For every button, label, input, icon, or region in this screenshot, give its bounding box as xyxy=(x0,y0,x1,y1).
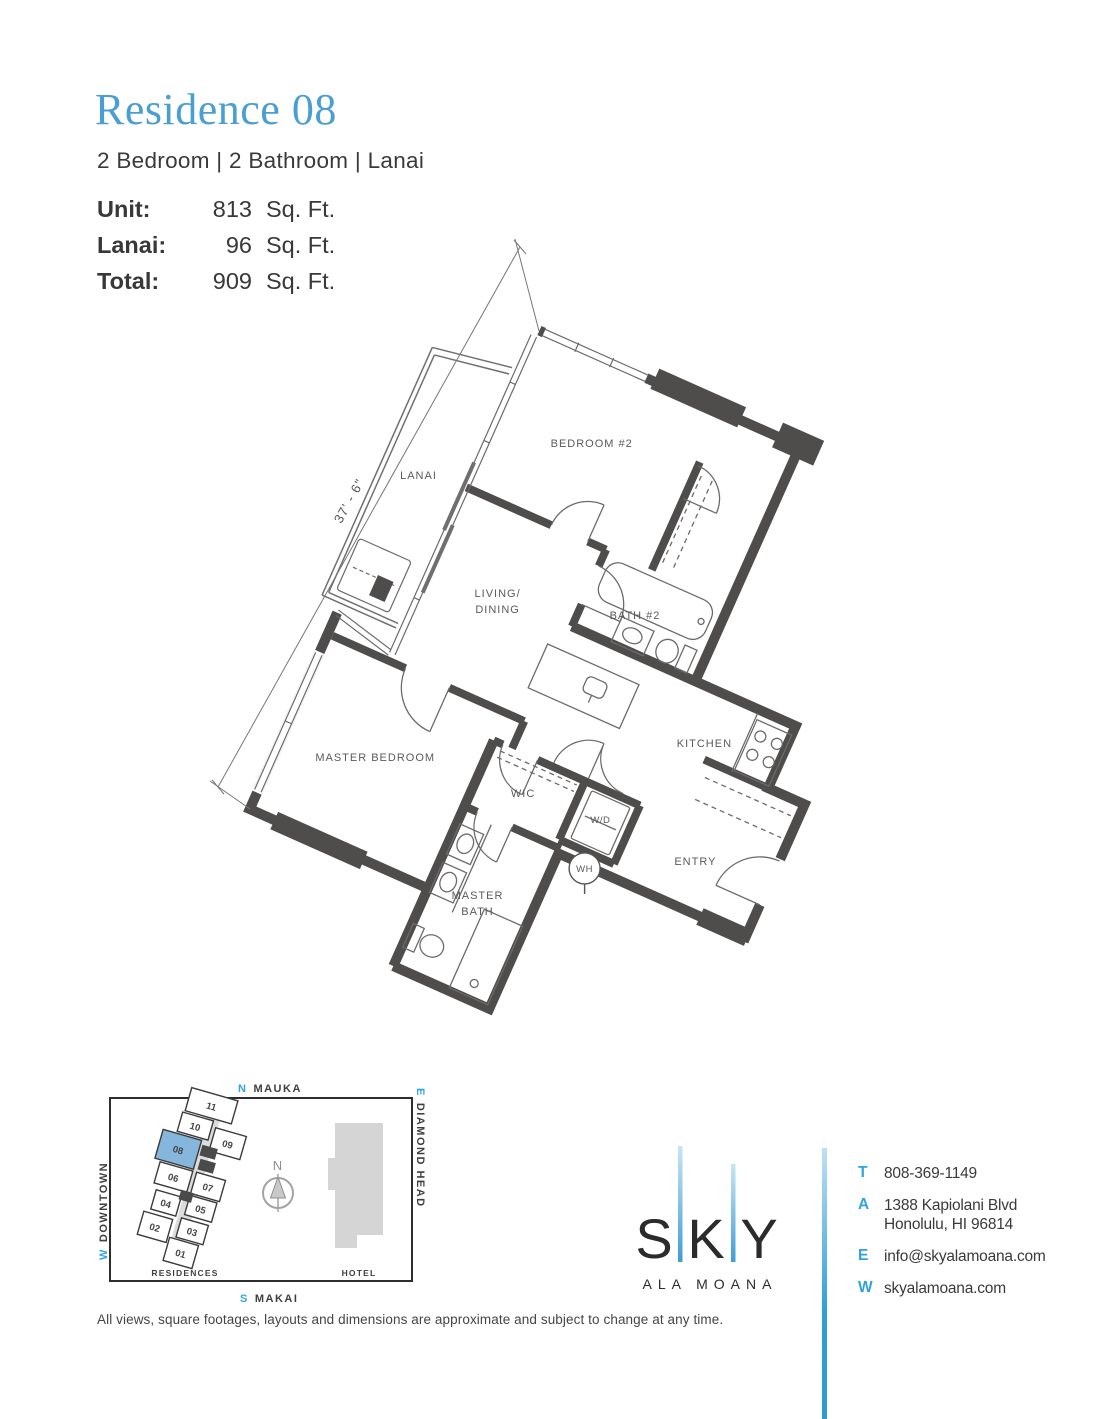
logo-letter-y: Y xyxy=(740,1207,777,1270)
wh-label: WH xyxy=(576,864,593,875)
counter-edge xyxy=(732,713,758,771)
shear-wall-chunks xyxy=(270,299,930,1024)
key-plan: NMAUKA SMAKAI WDOWNTOWN EDIAMOND HEAD xyxy=(95,1080,440,1325)
contact-row-website: W skyalamoana.com xyxy=(858,1279,1093,1298)
grill-icon xyxy=(369,575,393,602)
website-label: W xyxy=(858,1279,884,1298)
room-label-entry: ENTRY xyxy=(674,856,716,868)
vertical-divider xyxy=(822,1148,827,1419)
flyer-page: Residence 08 2 Bedroom | 2 Bathroom | La… xyxy=(0,0,1100,1419)
room-label-master: MASTER BEDROOM xyxy=(315,752,435,764)
address-line-1: 1388 Kapiolani Blvd xyxy=(884,1197,1017,1214)
room-label-wd: W/D xyxy=(590,815,610,826)
room-label-living-2: DINING xyxy=(475,604,519,616)
page-subtitle: 2 Bedroom | 2 Bathroom | Lanai xyxy=(97,148,424,174)
island-sink xyxy=(582,675,609,699)
direction-north: NMAUKA xyxy=(238,1083,302,1095)
room-label-living-1: LIVING/ xyxy=(475,588,521,600)
svg-text:N: N xyxy=(273,1158,283,1173)
residences-label: RESIDENCES xyxy=(151,1268,218,1278)
sky-ala-moana-logo: S K Y ALA MOANA xyxy=(630,1142,815,1302)
stat-value: 813 xyxy=(192,196,252,223)
sliding-door xyxy=(421,524,455,593)
water-heater: WH xyxy=(569,853,600,894)
email-address: info@skyalamoana.com xyxy=(884,1247,1046,1266)
hotel-footprint xyxy=(328,1123,383,1248)
exterior-walls xyxy=(215,302,930,1085)
phone-number: 808-369-1149 xyxy=(884,1164,977,1183)
stat-unit: Sq. Ft. xyxy=(266,196,335,223)
email-label: E xyxy=(858,1247,884,1266)
logo-letter-s: S xyxy=(635,1207,672,1270)
room-label-bedroom2: BEDROOM #2 xyxy=(551,438,633,450)
stat-row-unit: Unit: 813 Sq. Ft. xyxy=(97,196,335,223)
logo-bar-1 xyxy=(678,1146,683,1262)
direction-east: EDIAMOND HEAD xyxy=(414,1088,426,1208)
website-url: skyalamoana.com xyxy=(884,1279,1006,1298)
room-label-bath2: BATH #2 xyxy=(610,610,661,622)
direction-west: WDOWNTOWN xyxy=(98,1162,110,1260)
hotel-label: HOTEL xyxy=(342,1268,377,1278)
floor-plan-geometry xyxy=(196,280,930,1085)
address-text: 1388 Kapiolani Blvd Honolulu, HI 96814 xyxy=(884,1196,1017,1234)
page-title: Residence 08 xyxy=(95,84,337,135)
room-label-lanai: LANAI xyxy=(400,470,437,482)
direction-south: SMAKAI xyxy=(240,1293,298,1305)
address-line-2: Honolulu, HI 96814 xyxy=(884,1216,1013,1233)
room-label-mbath-2: BATH xyxy=(461,906,494,918)
phone-label: T xyxy=(858,1164,884,1183)
room-label-kitchen: KITCHEN xyxy=(677,738,732,750)
sliding-door xyxy=(442,462,476,531)
contact-row-address: A 1388 Kapiolani Blvd Honolulu, HI 96814 xyxy=(858,1196,1093,1234)
logo-subtitle: ALA MOANA xyxy=(643,1276,778,1292)
stat-label: Unit: xyxy=(97,196,192,223)
address-label: A xyxy=(858,1196,884,1234)
shower-drain xyxy=(469,978,480,989)
contact-row-email: E info@skyalamoana.com xyxy=(858,1247,1093,1266)
logo-bar-2 xyxy=(731,1164,736,1262)
contact-row-phone: T 808-369-1149 xyxy=(858,1164,1093,1183)
floor-plan: 37' - 6" WH BEDROOM #2 LANAI LIVING/ DIN… xyxy=(170,235,930,1085)
witness-lines xyxy=(210,239,539,809)
room-label-mbath-1: MASTER xyxy=(452,890,504,902)
contact-info: T 808-369-1149 A 1388 Kapiolani Blvd Hon… xyxy=(858,1164,1093,1311)
tub-faucet xyxy=(697,617,705,625)
dimension-line xyxy=(210,239,539,809)
disclaimer-text: All views, square footages, layouts and … xyxy=(97,1312,723,1327)
room-label-wic: WIC xyxy=(511,788,535,800)
logo-letter-k: K xyxy=(687,1207,724,1270)
